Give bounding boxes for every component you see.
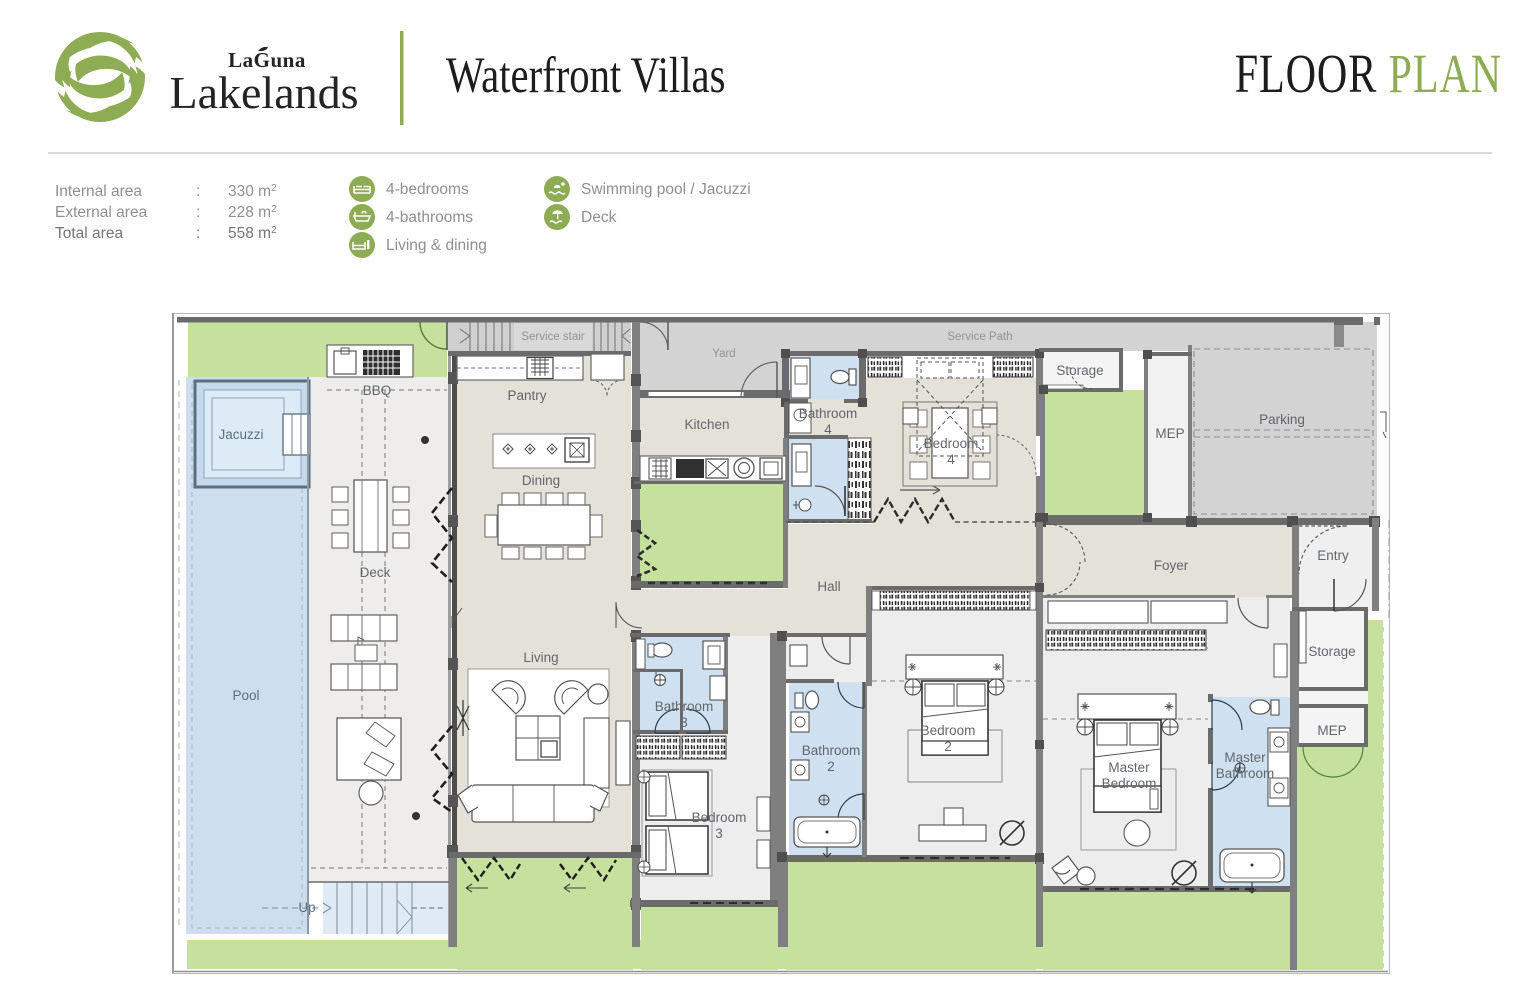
- svg-text:228 m2: 228 m2: [228, 204, 277, 221]
- svg-text:MEP: MEP: [1155, 426, 1184, 441]
- svg-text:Bathroom: Bathroom: [799, 406, 858, 421]
- svg-text:Hall: Hall: [817, 579, 840, 594]
- svg-text:2: 2: [827, 759, 835, 774]
- svg-text:Bathroom: Bathroom: [1216, 766, 1275, 781]
- svg-text:4-bedrooms: 4-bedrooms: [386, 181, 469, 198]
- svg-text:Deck: Deck: [581, 209, 617, 226]
- svg-text::: :: [196, 225, 200, 242]
- svg-text:Lakelands: Lakelands: [169, 67, 358, 118]
- svg-text::: :: [196, 183, 200, 200]
- svg-text:Living & dining: Living & dining: [386, 237, 487, 254]
- svg-text:Jacuzzi: Jacuzzi: [218, 427, 263, 442]
- svg-text:Parking: Parking: [1259, 412, 1305, 427]
- svg-text:Kitchen: Kitchen: [684, 417, 729, 432]
- svg-text:Bedroom: Bedroom: [1102, 776, 1157, 791]
- svg-text:FLOOR PLAN: FLOOR PLAN: [1235, 43, 1502, 105]
- svg-text:Pool: Pool: [232, 688, 259, 703]
- svg-text:Entry: Entry: [1317, 548, 1349, 563]
- svg-text:Master: Master: [1108, 760, 1150, 775]
- svg-text:Storage: Storage: [1308, 644, 1355, 659]
- svg-text:4: 4: [824, 422, 832, 437]
- svg-text:MEP: MEP: [1317, 723, 1346, 738]
- svg-text::: :: [196, 204, 200, 221]
- svg-text:Dining: Dining: [522, 473, 560, 488]
- svg-text:558 m2: 558 m2: [228, 225, 277, 242]
- svg-text:330 m2: 330 m2: [228, 183, 277, 200]
- svg-text:Internal area: Internal area: [55, 183, 142, 200]
- svg-text:Living: Living: [523, 650, 558, 665]
- svg-text:BBQ: BBQ: [363, 383, 392, 398]
- svg-text:Bathroom: Bathroom: [802, 743, 861, 758]
- svg-text:Total area: Total area: [55, 225, 123, 242]
- svg-text:2: 2: [944, 739, 952, 754]
- svg-text:Bedroom: Bedroom: [924, 436, 979, 451]
- svg-text:Service stair: Service stair: [521, 331, 584, 343]
- svg-text:External area: External area: [55, 204, 148, 221]
- svg-text:Pantry: Pantry: [507, 388, 546, 403]
- svg-text:Service Path: Service Path: [947, 331, 1012, 343]
- svg-text:Swimming pool / Jacuzzi: Swimming pool / Jacuzzi: [581, 181, 751, 198]
- svg-text:Bedroom: Bedroom: [921, 723, 976, 738]
- svg-text:Master: Master: [1224, 750, 1266, 765]
- svg-text:3: 3: [715, 826, 723, 841]
- svg-text:4-bathrooms: 4-bathrooms: [386, 209, 473, 226]
- svg-text:3: 3: [680, 715, 688, 730]
- svg-text:Waterfront Villas: Waterfront Villas: [446, 47, 725, 103]
- svg-text:Bedroom: Bedroom: [692, 810, 747, 825]
- svg-text:4: 4: [947, 452, 955, 467]
- svg-text:Storage: Storage: [1056, 363, 1103, 378]
- svg-text:Bathroom: Bathroom: [655, 699, 714, 714]
- svg-text:Up: Up: [298, 900, 315, 915]
- svg-text:Yard: Yard: [712, 348, 735, 360]
- svg-text:Deck: Deck: [360, 565, 391, 580]
- svg-text:Foyer: Foyer: [1154, 558, 1189, 573]
